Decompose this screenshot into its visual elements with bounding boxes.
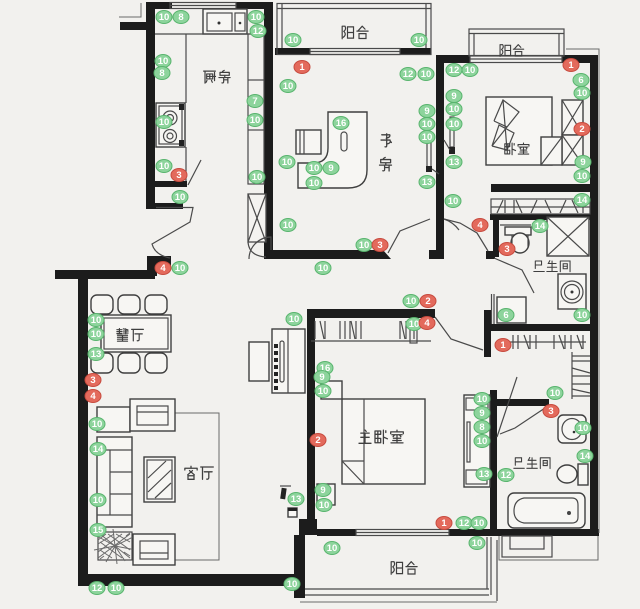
svg-text:10: 10 [175,192,186,203]
svg-text:9: 9 [320,485,325,496]
svg-text:13: 13 [479,469,490,480]
svg-text:10: 10 [158,56,169,67]
svg-text:10: 10 [406,296,417,307]
svg-text:10: 10 [92,419,103,430]
svg-text:3: 3 [548,406,553,417]
svg-text:3: 3 [377,240,382,251]
svg-text:10: 10 [414,35,425,46]
svg-text:10: 10 [91,329,102,340]
svg-text:6: 6 [503,310,508,321]
svg-text:12: 12 [253,26,264,37]
svg-text:10: 10 [283,81,294,92]
svg-text:14: 14 [580,451,591,462]
svg-text:3: 3 [504,244,509,255]
svg-text:9: 9 [328,163,333,174]
svg-text:10: 10 [449,104,460,115]
svg-text:10: 10 [111,583,122,594]
svg-text:4: 4 [90,391,96,402]
svg-text:10: 10 [577,171,588,182]
svg-text:13: 13 [291,494,302,505]
svg-text:10: 10 [448,196,459,207]
svg-text:4: 4 [424,318,430,329]
svg-text:10: 10 [422,132,433,143]
svg-text:15: 15 [93,525,104,536]
svg-text:10: 10 [359,240,370,251]
svg-text:12: 12 [449,65,460,76]
svg-text:10: 10 [550,388,561,399]
svg-text:10: 10 [472,538,483,549]
svg-text:10: 10 [577,310,588,321]
svg-text:4: 4 [477,220,483,231]
svg-text:7: 7 [252,96,257,107]
svg-text:9: 9 [319,372,324,383]
svg-text:10: 10 [477,394,488,405]
svg-text:10: 10 [465,65,476,76]
svg-text:3: 3 [176,170,181,181]
svg-text:10: 10 [327,543,338,554]
svg-text:9: 9 [451,91,456,102]
svg-text:10: 10 [409,319,420,330]
svg-text:13: 13 [422,177,433,188]
svg-text:10: 10 [477,436,488,447]
svg-text:10: 10 [319,500,330,511]
svg-text:9: 9 [580,157,585,168]
svg-text:10: 10 [91,315,102,326]
svg-text:10: 10 [578,423,589,434]
svg-text:1: 1 [568,60,574,71]
svg-text:13: 13 [91,349,102,360]
svg-text:10: 10 [474,518,485,529]
svg-text:1: 1 [500,340,506,351]
svg-text:10: 10 [159,12,170,23]
svg-text:14: 14 [93,444,104,455]
svg-text:16: 16 [336,118,347,129]
svg-text:12: 12 [459,518,470,529]
svg-text:4: 4 [160,263,166,274]
svg-text:1: 1 [441,518,447,529]
svg-text:9: 9 [479,408,484,419]
svg-text:12: 12 [92,583,103,594]
svg-text:2: 2 [425,296,430,307]
svg-text:10: 10 [577,88,588,99]
svg-text:10: 10 [309,163,320,174]
svg-text:3: 3 [90,375,95,386]
svg-text:8: 8 [479,422,484,433]
svg-text:10: 10 [309,178,320,189]
svg-text:10: 10 [287,579,298,590]
svg-text:13: 13 [449,157,460,168]
svg-text:10: 10 [288,35,299,46]
svg-text:10: 10 [159,161,170,172]
svg-text:10: 10 [289,314,300,325]
svg-text:14: 14 [535,221,546,232]
svg-text:9: 9 [424,106,429,117]
svg-text:14: 14 [577,195,588,206]
svg-text:10: 10 [250,115,261,126]
svg-text:1: 1 [299,62,305,73]
svg-text:10: 10 [449,119,460,130]
svg-text:10: 10 [175,263,186,274]
svg-text:10: 10 [422,119,433,130]
svg-text:10: 10 [318,386,329,397]
svg-text:2: 2 [315,435,320,446]
svg-text:8: 8 [159,68,164,79]
svg-text:10: 10 [282,157,293,168]
svg-text:12: 12 [501,470,512,481]
svg-text:10: 10 [93,495,104,506]
svg-text:10: 10 [251,12,262,23]
svg-text:10: 10 [159,117,170,128]
svg-text:10: 10 [283,220,294,231]
svg-text:10: 10 [421,69,432,80]
svg-text:10: 10 [252,172,263,183]
svg-text:2: 2 [579,124,584,135]
svg-text:8: 8 [178,12,183,23]
svg-text:6: 6 [578,75,583,86]
svg-text:10: 10 [318,263,329,274]
svg-text:12: 12 [403,69,414,80]
